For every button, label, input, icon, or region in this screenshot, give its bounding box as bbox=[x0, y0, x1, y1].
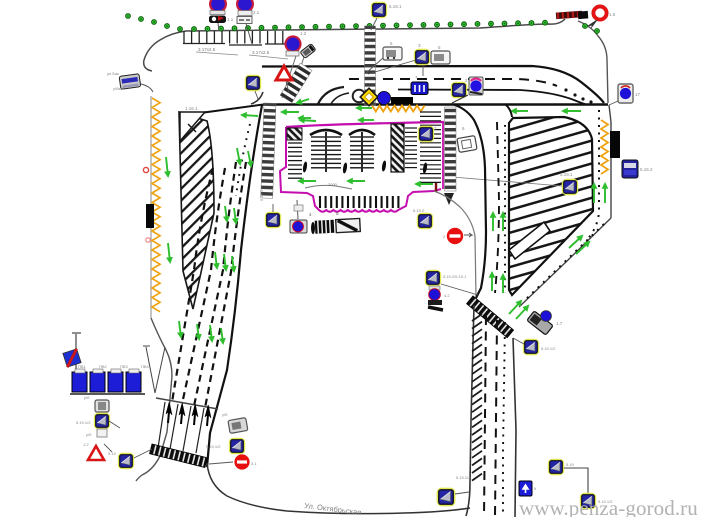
svg-text:ПВ2: ПВ2 bbox=[99, 364, 108, 369]
svg-text:1.7: 1.7 bbox=[556, 321, 563, 326]
svg-text:1.16.1: 1.16.1 bbox=[185, 106, 198, 111]
svg-text:www.penza-gorod.ru: www.penza-gorod.ru bbox=[519, 496, 698, 517]
svg-text:1.1: 1.1 bbox=[227, 17, 234, 22]
svg-text:5.19.1/2: 5.19.1/2 bbox=[456, 475, 471, 480]
svg-text:5.19: 5.19 bbox=[566, 462, 575, 467]
svg-text:ПВ1: ПВ1 bbox=[78, 364, 87, 369]
svg-text:ПВ4: ПВ4 bbox=[141, 364, 150, 369]
svg-text:5.19.1/2: 5.19.1/2 bbox=[541, 346, 556, 351]
svg-text:2000: 2000 bbox=[328, 182, 338, 187]
svg-text:5.19.1: 5.19.1 bbox=[389, 4, 402, 9]
svg-text:1.2: 1.2 bbox=[83, 442, 89, 447]
svg-text:у/бак4: у/бак4 bbox=[113, 86, 125, 91]
svg-text:у/б: у/б bbox=[222, 412, 228, 417]
svg-text:ул.Бак: ул.Бак bbox=[107, 71, 119, 76]
svg-text:5.19: 5.19 bbox=[108, 451, 117, 456]
svg-text:3.17x2.5: 3.17x2.5 bbox=[198, 47, 216, 52]
svg-text:5.19.2: 5.19.2 bbox=[413, 208, 425, 213]
svg-text:17: 17 bbox=[635, 92, 641, 97]
svg-text:5.19.2/5.19.1: 5.19.2/5.19.1 bbox=[443, 274, 467, 279]
svg-text:2.1: 2.1 bbox=[253, 10, 260, 15]
svg-text:5.19.1: 5.19.1 bbox=[259, 189, 264, 201]
svg-text:3.1: 3.1 bbox=[251, 461, 257, 466]
svg-text:5.19.1: 5.19.1 bbox=[560, 172, 573, 177]
svg-text:4.2: 4.2 bbox=[444, 293, 450, 298]
svg-text:5.19.1/2: 5.19.1/2 bbox=[76, 420, 91, 425]
svg-text:1.5: 1.5 bbox=[609, 12, 616, 17]
svg-text:у/б: у/б bbox=[84, 395, 90, 400]
svg-text:ПВ3: ПВ3 bbox=[120, 364, 129, 369]
svg-text:3.17x2.5: 3.17x2.5 bbox=[252, 50, 270, 55]
svg-text:у/б: у/б bbox=[86, 432, 92, 437]
svg-text:1.2: 1.2 bbox=[300, 31, 307, 36]
svg-text:5.19.1/2: 5.19.1/2 bbox=[206, 444, 221, 449]
svg-text:5.16.2: 5.16.2 bbox=[640, 167, 653, 172]
